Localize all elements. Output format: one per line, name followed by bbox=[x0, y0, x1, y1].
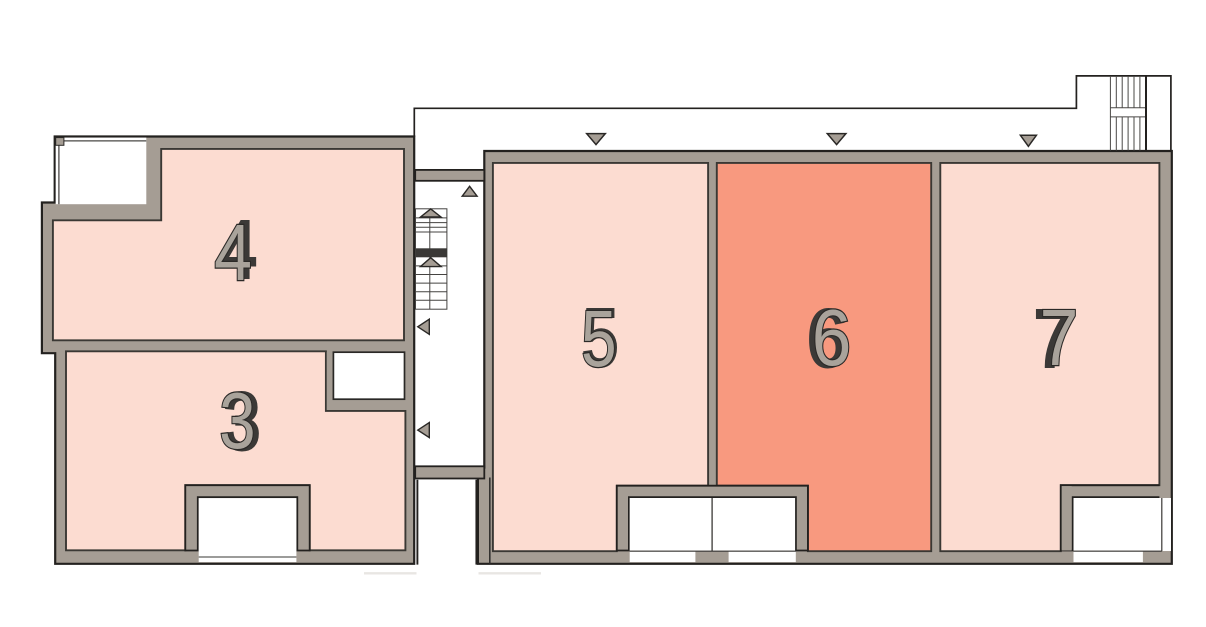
svg-text:4: 4 bbox=[214, 208, 252, 297]
svg-text:7: 7 bbox=[1040, 292, 1079, 382]
svg-text:3: 3 bbox=[219, 376, 255, 466]
svg-text:5: 5 bbox=[581, 294, 617, 383]
svg-text:6: 6 bbox=[812, 293, 852, 383]
